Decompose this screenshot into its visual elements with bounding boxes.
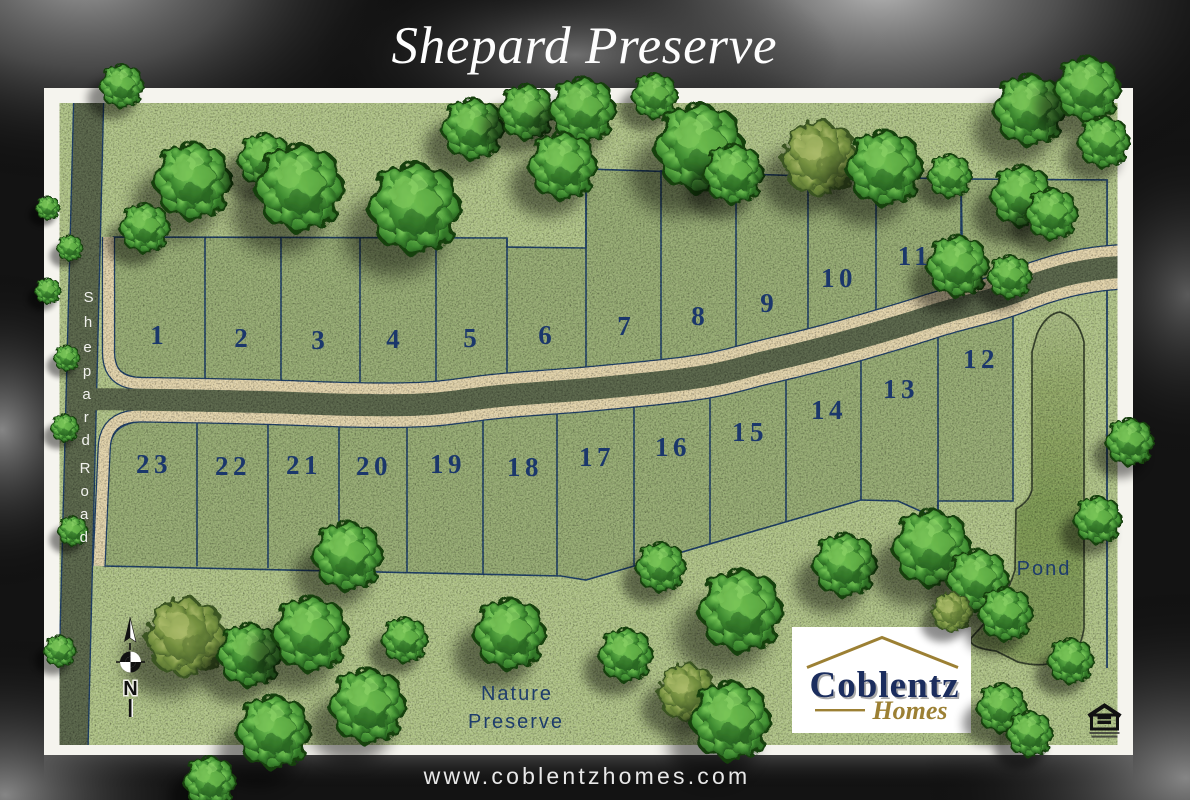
svg-text:d: d	[80, 529, 88, 546]
svg-text:d: d	[82, 432, 90, 449]
svg-text:9: 9	[760, 288, 774, 318]
svg-text:11: 11	[898, 241, 933, 271]
svg-text:p: p	[83, 363, 91, 380]
svg-text:r: r	[84, 409, 89, 426]
svg-text:21: 21	[286, 450, 322, 480]
svg-text:N: N	[123, 678, 137, 700]
svg-text:15: 15	[732, 417, 768, 447]
svg-text:2: 2	[234, 323, 248, 353]
svg-text:Pond: Pond	[1017, 558, 1072, 580]
svg-text:a: a	[82, 386, 91, 403]
svg-text:1: 1	[150, 320, 164, 350]
svg-text:19: 19	[430, 449, 466, 479]
svg-text:10: 10	[821, 263, 857, 293]
svg-text:4: 4	[386, 324, 400, 354]
svg-text:16: 16	[655, 432, 691, 462]
svg-text:6: 6	[538, 320, 552, 350]
svg-text:Preserve: Preserve	[468, 711, 564, 733]
svg-text:o: o	[81, 483, 89, 500]
svg-text:Nature: Nature	[481, 683, 553, 705]
svg-text:12: 12	[963, 344, 999, 374]
svg-text:S: S	[84, 289, 94, 306]
svg-text:a: a	[80, 506, 89, 523]
svg-text:18: 18	[507, 452, 543, 482]
svg-text:e: e	[83, 339, 91, 356]
svg-text:7: 7	[617, 311, 631, 341]
svg-text:Shepard Preserve: Shepard Preserve	[392, 17, 777, 75]
svg-text:8: 8	[691, 301, 705, 331]
svg-text:5: 5	[463, 323, 477, 353]
svg-text:Homes: Homes	[871, 696, 947, 725]
svg-text:22: 22	[215, 451, 251, 481]
svg-text:17: 17	[579, 442, 615, 472]
svg-text:14: 14	[811, 395, 847, 425]
svg-text:h: h	[84, 314, 92, 331]
svg-text:3: 3	[311, 325, 325, 355]
svg-text:R: R	[80, 460, 91, 477]
svg-text:13: 13	[883, 374, 919, 404]
svg-text:www.coblentzhomes.com: www.coblentzhomes.com	[423, 763, 751, 789]
svg-text:20: 20	[356, 451, 392, 481]
svg-text:23: 23	[136, 449, 172, 479]
